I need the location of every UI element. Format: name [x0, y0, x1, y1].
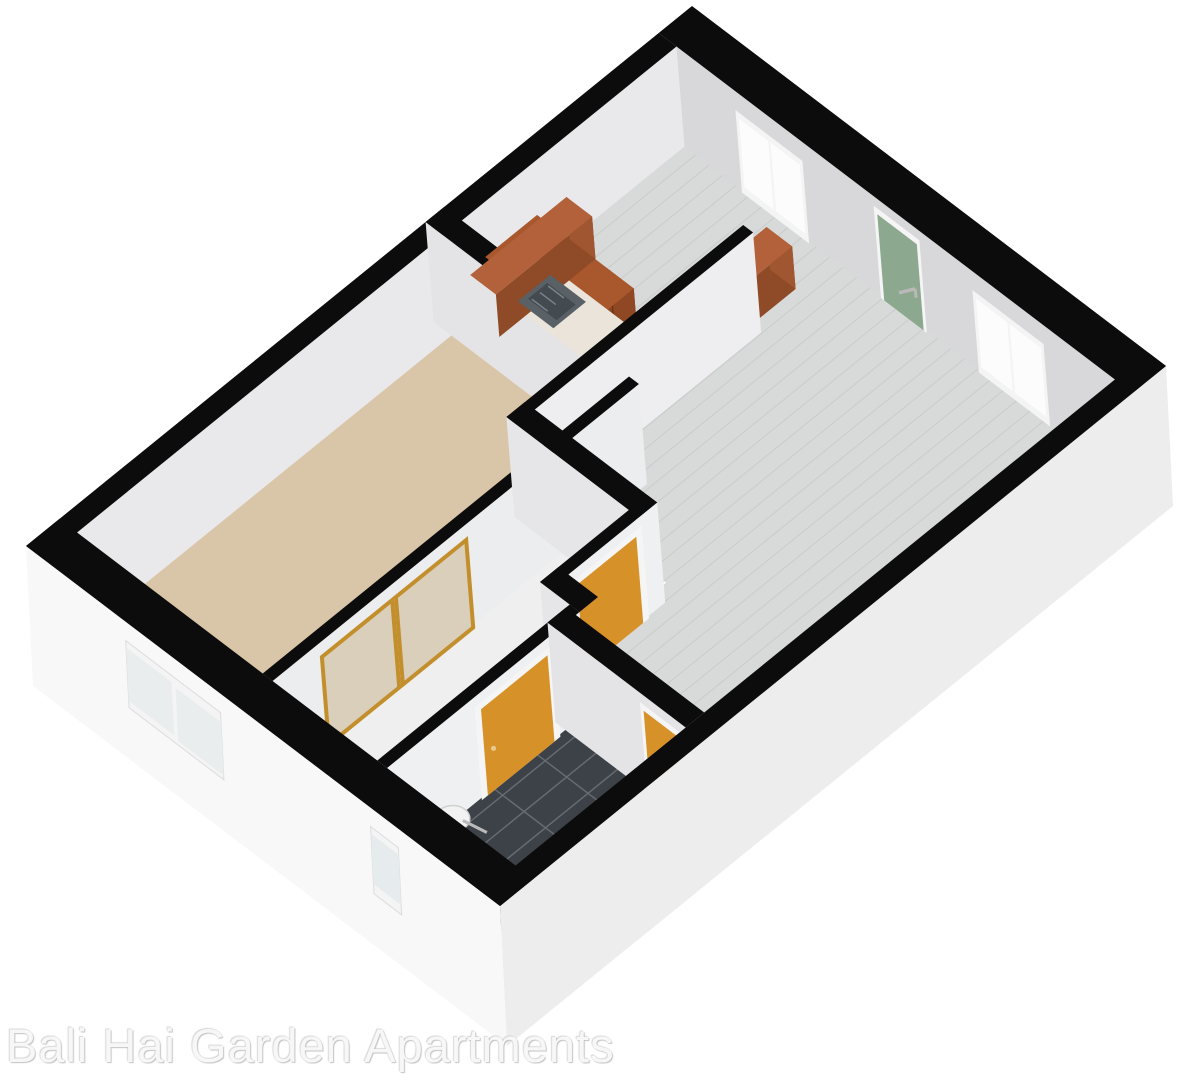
floor-plan-image: Bali Hai Garden Apartments	[0, 0, 1195, 1080]
watermark-title: Bali Hai Garden Apartments	[6, 1018, 615, 1073]
floor-plan-3d	[0, 0, 1195, 1080]
